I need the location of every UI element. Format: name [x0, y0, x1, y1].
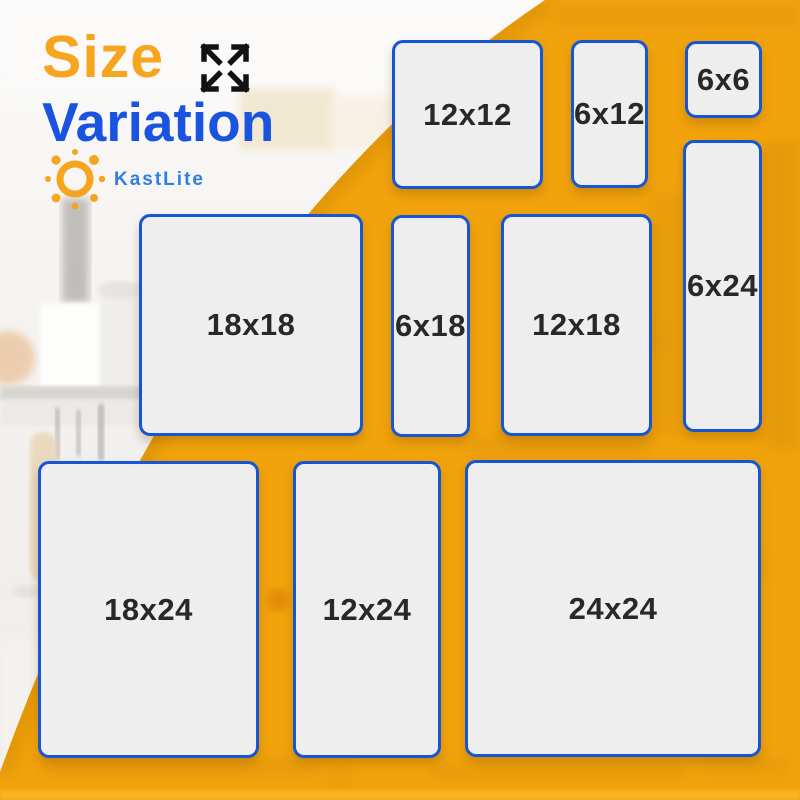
brand-name: KastLite: [114, 169, 205, 191]
size-tile-18x18: 18x18: [139, 214, 363, 436]
expand-arrows-icon: [195, 38, 255, 98]
size-tile-label: 18x24: [104, 592, 193, 628]
sun-icon: [42, 146, 108, 212]
size-tile-18x24: 18x24: [38, 461, 259, 758]
size-tile-label: 6x6: [697, 62, 750, 98]
size-tile-label: 6x12: [574, 96, 645, 132]
size-tile-24x24: 24x24: [465, 460, 761, 757]
size-tile-label: 12x12: [423, 97, 512, 133]
size-tile-6x6: 6x6: [685, 41, 762, 118]
size-tile-label: 6x18: [395, 308, 466, 344]
size-tile-6x12: 6x12: [571, 40, 648, 188]
size-tile-12x24: 12x24: [293, 461, 441, 758]
size-tile-label: 12x18: [532, 307, 621, 343]
brand-logo: KastLite: [42, 146, 205, 212]
size-tile-label: 6x24: [687, 268, 758, 304]
product-infographic: Size Variation KastLite 12x1: [0, 0, 800, 800]
title-word-variation: Variation: [42, 95, 274, 150]
size-tile-6x18: 6x18: [391, 215, 470, 437]
size-tile-12x18: 12x18: [501, 214, 652, 436]
size-tile-label: 18x18: [207, 307, 296, 343]
size-tile-6x24: 6x24: [683, 140, 762, 432]
size-tile-label: 12x24: [323, 592, 412, 628]
size-tile-12x12: 12x12: [392, 40, 543, 189]
size-tile-label: 24x24: [569, 591, 658, 627]
